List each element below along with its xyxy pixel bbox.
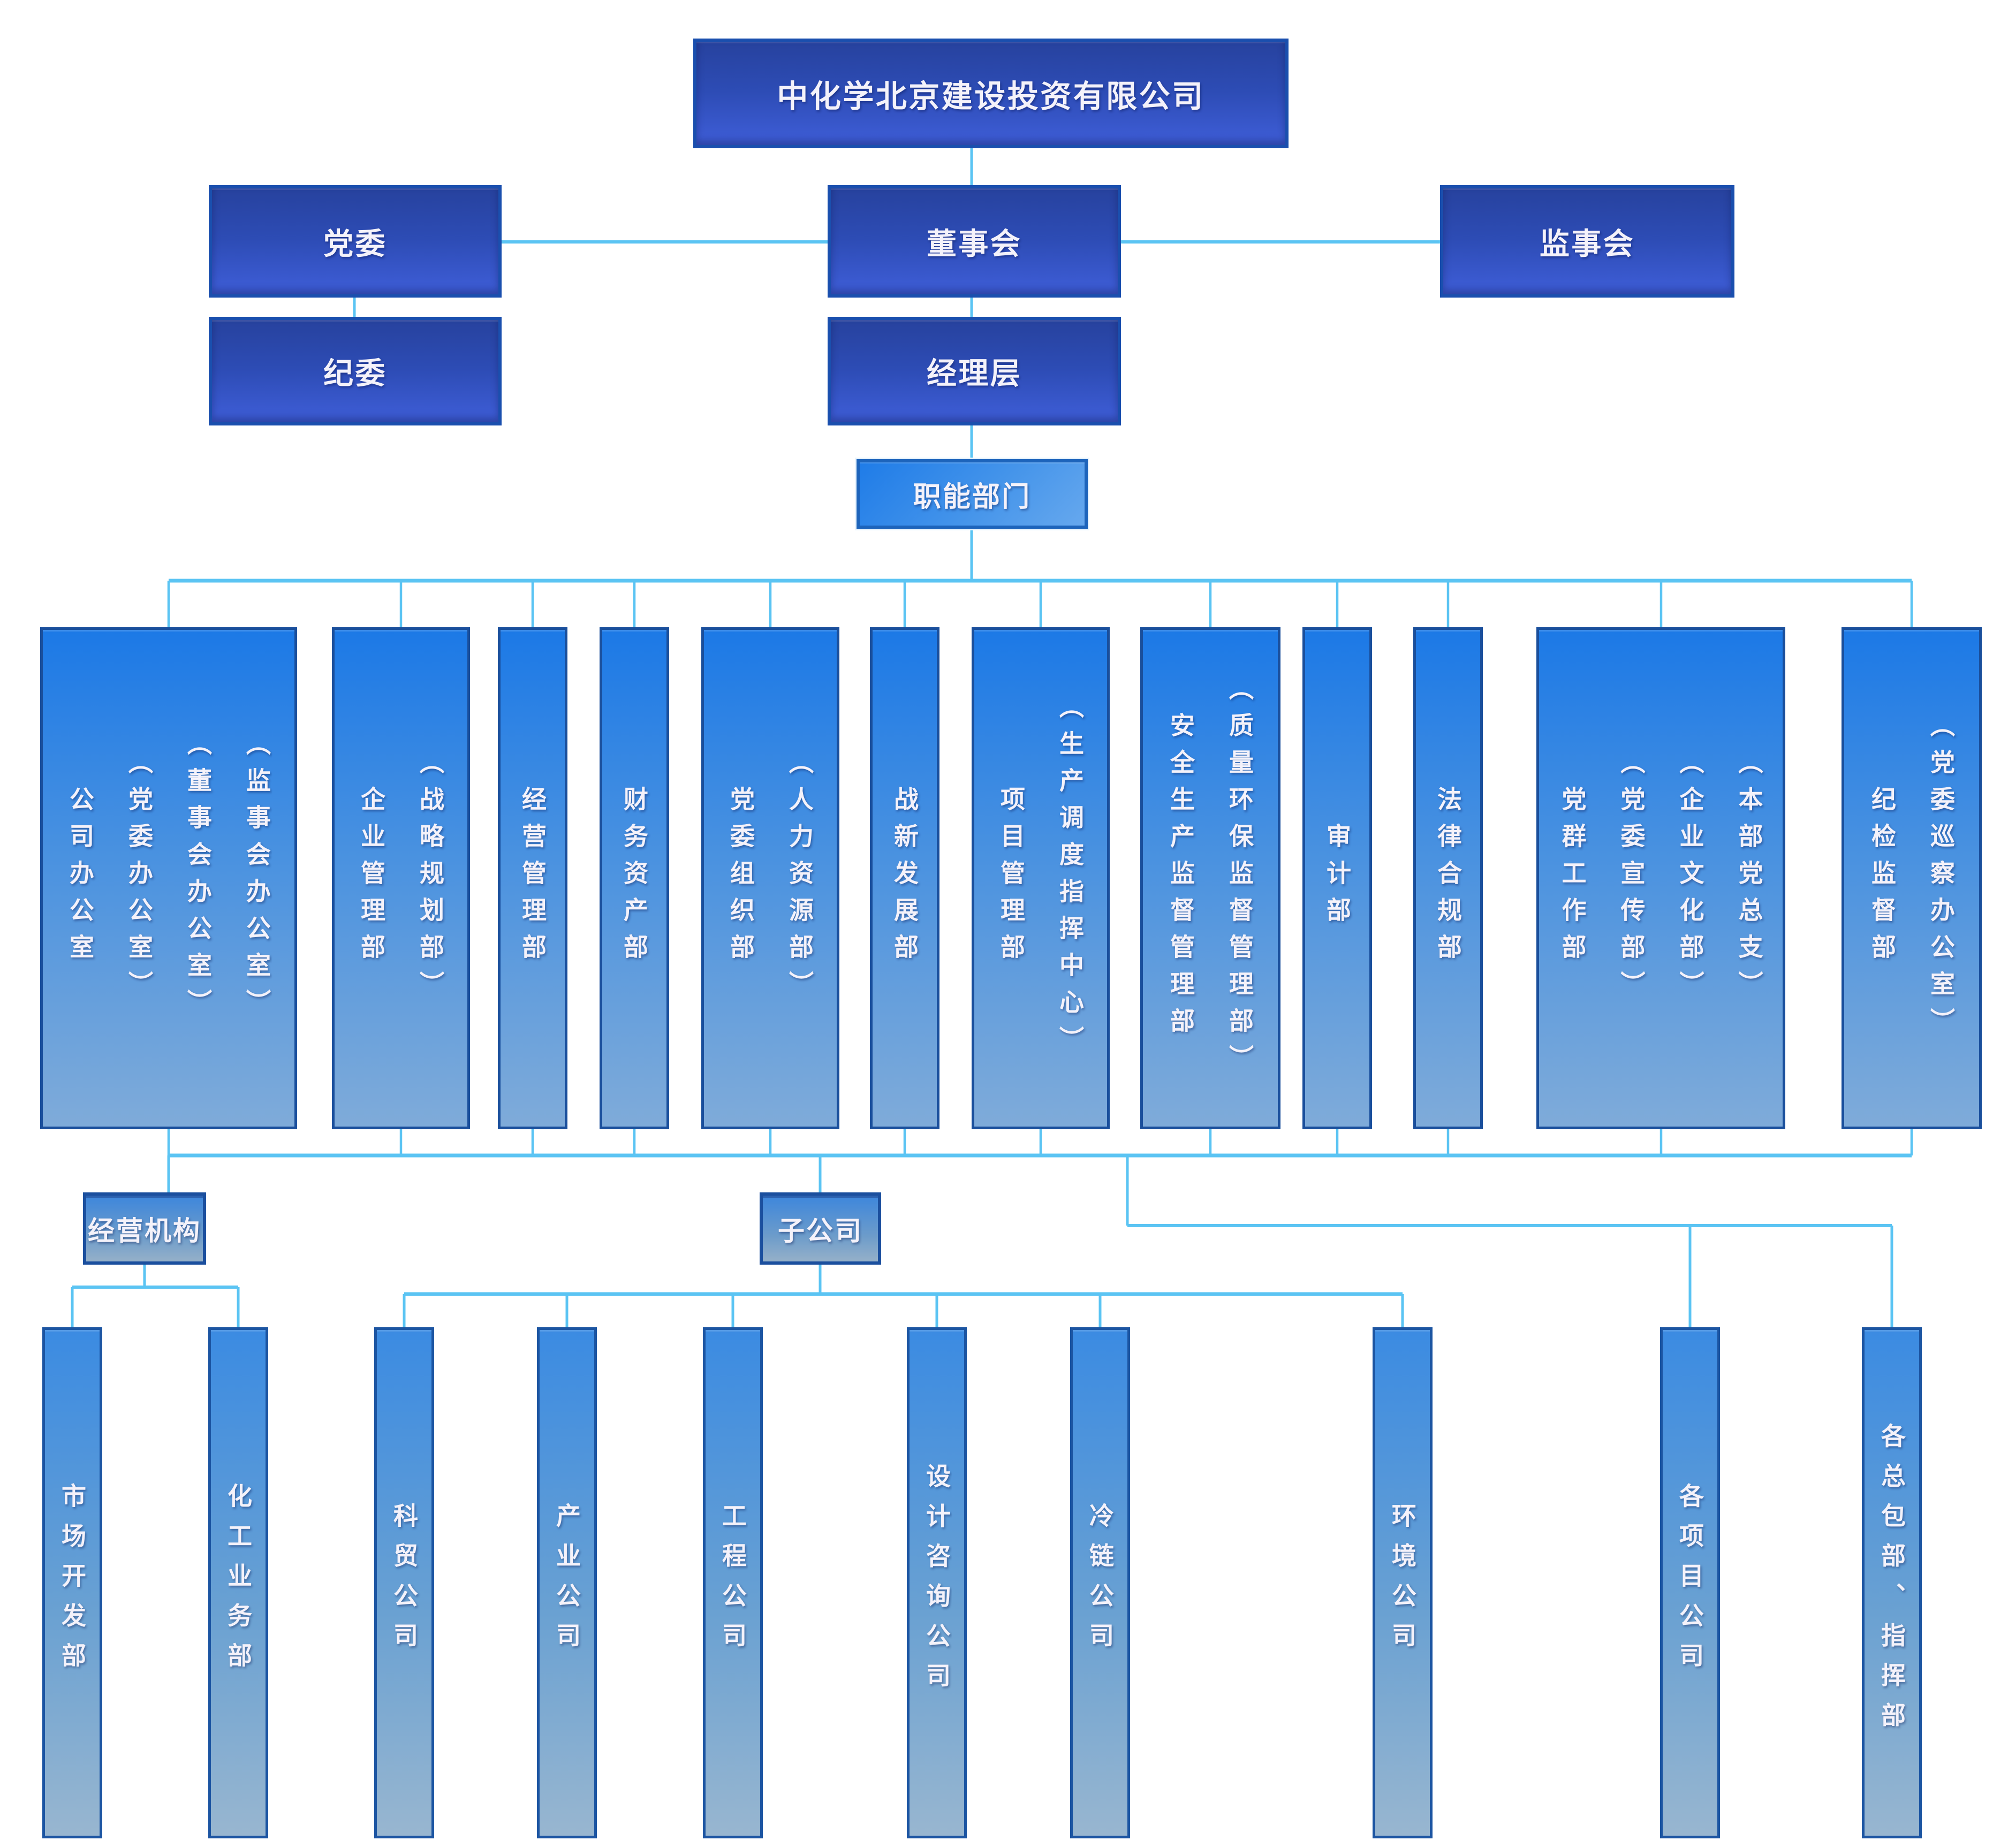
dept-alias-column: （人力资源部） (782, 749, 817, 1008)
dept-project-management: 项目管理部 （生产调度指挥中心） (972, 627, 1110, 1129)
dept-name-column: 党委组织部 (723, 786, 759, 971)
unit-label: 产业公司 (549, 1503, 585, 1662)
dept-audit: 审计部 (1302, 627, 1372, 1129)
company-engineering: 工程公司 (703, 1327, 763, 1838)
dept-name-column: 项目管理部 (994, 786, 1029, 971)
node-label: 中化学北京建设投资有限公司 (777, 71, 1204, 116)
dept-name-column: 战新发展部 (887, 786, 922, 971)
unit-label: 化工业务部 (221, 1483, 256, 1683)
node-label: 监事会 (1540, 220, 1635, 263)
dept-name-column: 纪检监督部 (1865, 786, 1900, 971)
company-science-trade: 科贸公司 (374, 1327, 434, 1838)
company-design-consulting: 设计咨询公司 (907, 1327, 967, 1838)
unit-label: 工程公司 (715, 1503, 751, 1662)
unit-general-contracting-command-depts: 各总包部、指挥部 (1862, 1327, 1922, 1838)
node-management-level: 经理层 (828, 317, 1121, 425)
dept-party-organization: 党委组织部 （人力资源部） (701, 627, 839, 1129)
dept-name-column: 党群工作部 (1555, 786, 1590, 971)
unit-label: 冷链公司 (1082, 1503, 1118, 1662)
dept-strategic-new-development: 战新发展部 (870, 627, 939, 1129)
node-discipline-committee: 纪委 (209, 317, 502, 425)
dept-operation-management: 经营管理部 (498, 627, 567, 1129)
dept-alias-column: （企业文化部） (1673, 749, 1708, 1008)
unit-label: 各总包部、指挥部 (1874, 1423, 1909, 1742)
node-label: 纪委 (323, 349, 387, 393)
dept-legal-compliance: 法律合规部 (1413, 627, 1483, 1129)
dept-name-column: 财务资产部 (617, 786, 652, 971)
unit-chemical-industry-business-dept: 化工业务部 (208, 1327, 268, 1838)
dept-alias-column: （董事会办公室） (180, 731, 216, 1026)
node-subsidiaries-header: 子公司 (760, 1192, 881, 1265)
company-industry: 产业公司 (537, 1327, 597, 1838)
node-business-organizations-header: 经营机构 (83, 1192, 206, 1265)
dept-enterprise-management: 企业管理部 （战略规划部） (332, 627, 470, 1129)
company-cold-chain: 冷链公司 (1070, 1327, 1130, 1838)
node-board-of-supervisors: 监事会 (1440, 185, 1734, 298)
node-label: 子公司 (778, 1210, 863, 1248)
node-label: 董事会 (927, 220, 1022, 263)
dept-name-column: 企业管理部 (354, 786, 389, 971)
node-label: 党委 (323, 220, 387, 263)
dept-safety-supervision: 安全生产监督管理部 （质量环保监督管理部） (1140, 627, 1280, 1129)
dept-alias-column: （生产调度指挥中心） (1052, 694, 1088, 1063)
unit-label: 各项目公司 (1672, 1483, 1708, 1683)
dept-alias-column: （战略规划部） (413, 749, 448, 1008)
dept-alias-column: （党委办公室） (122, 749, 157, 1008)
dept-alias-column: （监事会办公室） (239, 731, 275, 1026)
dept-company-office: 公司办公室 （党委办公室） （董事会办公室） （监事会办公室） (40, 627, 297, 1129)
node-functional-departments-header: 职能部门 (857, 459, 1088, 529)
dept-party-mass-work: 党群工作部 （党委宣传部） （企业文化部） （本部党总支） (1536, 627, 1785, 1129)
node-label: 职能部门 (913, 474, 1031, 514)
node-root-company: 中化学北京建设投资有限公司 (693, 39, 1289, 148)
dept-alias-column: （党委宣传部） (1614, 749, 1649, 1008)
dept-name-column: 审计部 (1320, 823, 1355, 934)
unit-label: 环境公司 (1385, 1503, 1420, 1662)
dept-alias-column: （党委巡察办公室） (1923, 712, 1959, 1045)
unit-project-companies: 各项目公司 (1660, 1327, 1720, 1838)
unit-label: 设计咨询公司 (919, 1463, 954, 1702)
node-label: 经营机构 (88, 1210, 201, 1248)
dept-alias-column: （本部党总支） (1732, 749, 1767, 1008)
dept-discipline-supervision: 纪检监督部 （党委巡察办公室） (1842, 627, 1982, 1129)
dept-alias-column: （质量环保监督管理部） (1222, 675, 1257, 1082)
dept-name-column: 安全生产监督管理部 (1163, 712, 1199, 1045)
unit-label: 科贸公司 (387, 1503, 422, 1662)
node-party-committee: 党委 (209, 185, 502, 298)
dept-name-column: 公司办公室 (63, 786, 98, 971)
dept-name-column: 经营管理部 (515, 786, 550, 971)
node-board-of-directors: 董事会 (828, 185, 1121, 298)
node-label: 经理层 (927, 349, 1022, 393)
unit-market-development-dept: 市场开发部 (42, 1327, 102, 1838)
org-chart-canvas: 中化学北京建设投资有限公司 党委 董事会 监事会 纪委 经理层 职能部门 公司办… (0, 0, 1993, 1848)
company-environment: 环境公司 (1373, 1327, 1433, 1838)
unit-label: 市场开发部 (55, 1483, 90, 1683)
dept-finance-assets: 财务资产部 (600, 627, 669, 1129)
dept-name-column: 法律合规部 (1430, 786, 1466, 971)
